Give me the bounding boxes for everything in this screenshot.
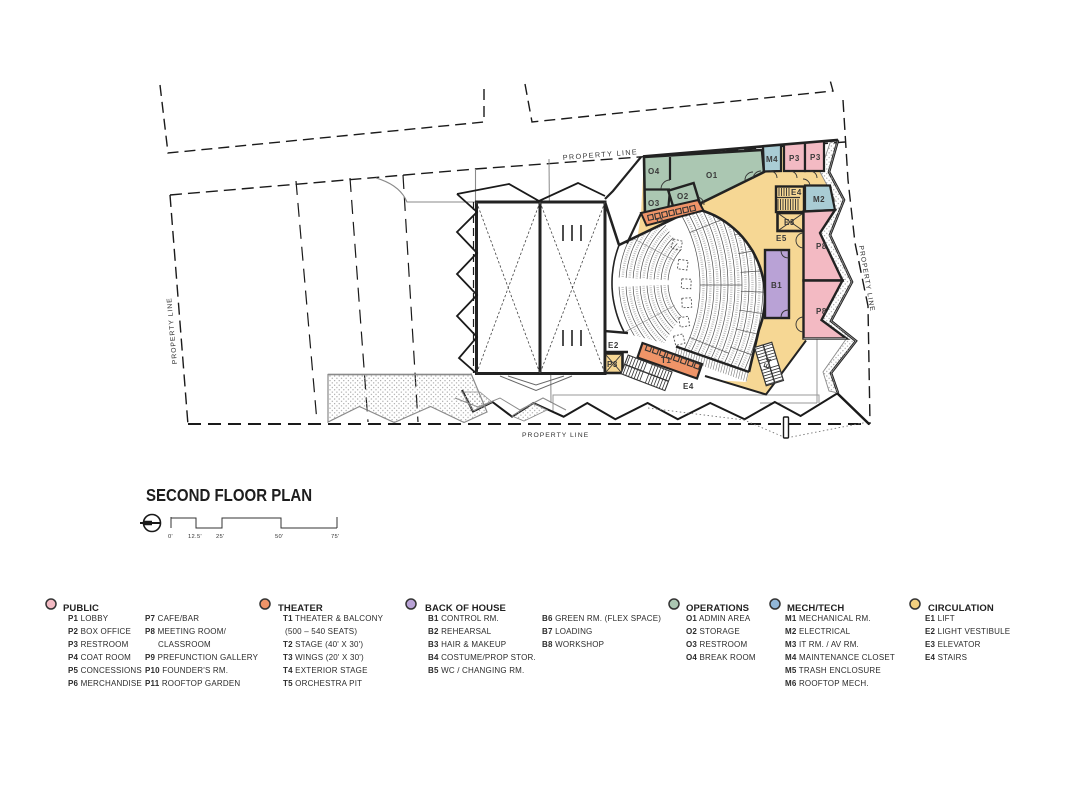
svg-text:P3: P3 [789, 154, 800, 163]
svg-text:O3: O3 [648, 199, 660, 208]
svg-text:M2: M2 [813, 195, 825, 204]
svg-text:12.5': 12.5' [188, 534, 202, 540]
svg-text:B1: B1 [771, 281, 782, 290]
svg-text:PROPERTY LINE: PROPERTY LINE [562, 147, 638, 162]
svg-text:E2: E2 [608, 341, 619, 350]
svg-text:P8: P8 [816, 242, 827, 251]
svg-text:T1: T1 [661, 356, 671, 365]
svg-text:E5: E5 [776, 234, 787, 243]
svg-text:SECOND FLOOR PLAN: SECOND FLOOR PLAN [146, 485, 312, 506]
svg-text:O4: O4 [648, 167, 660, 176]
svg-text:E4: E4 [683, 382, 694, 391]
svg-text:75': 75' [331, 534, 339, 540]
svg-text:P3: P3 [607, 360, 618, 369]
svg-text:50': 50' [275, 534, 283, 540]
svg-text:E3: E3 [784, 218, 795, 227]
svg-text:P3: P3 [810, 153, 821, 162]
svg-text:PROPERTY LINE: PROPERTY LINE [166, 297, 179, 365]
svg-text:O2: O2 [677, 192, 689, 201]
svg-text:PROPERTY LINE: PROPERTY LINE [522, 432, 589, 439]
svg-text:M4: M4 [766, 155, 778, 164]
svg-text:PROPERTY LINE: PROPERTY LINE [857, 245, 876, 312]
svg-text:0': 0' [168, 534, 173, 540]
svg-text:25': 25' [216, 534, 224, 540]
svg-text:P8: P8 [816, 307, 827, 316]
svg-text:O1: O1 [706, 171, 718, 180]
svg-text:E4: E4 [791, 188, 802, 197]
